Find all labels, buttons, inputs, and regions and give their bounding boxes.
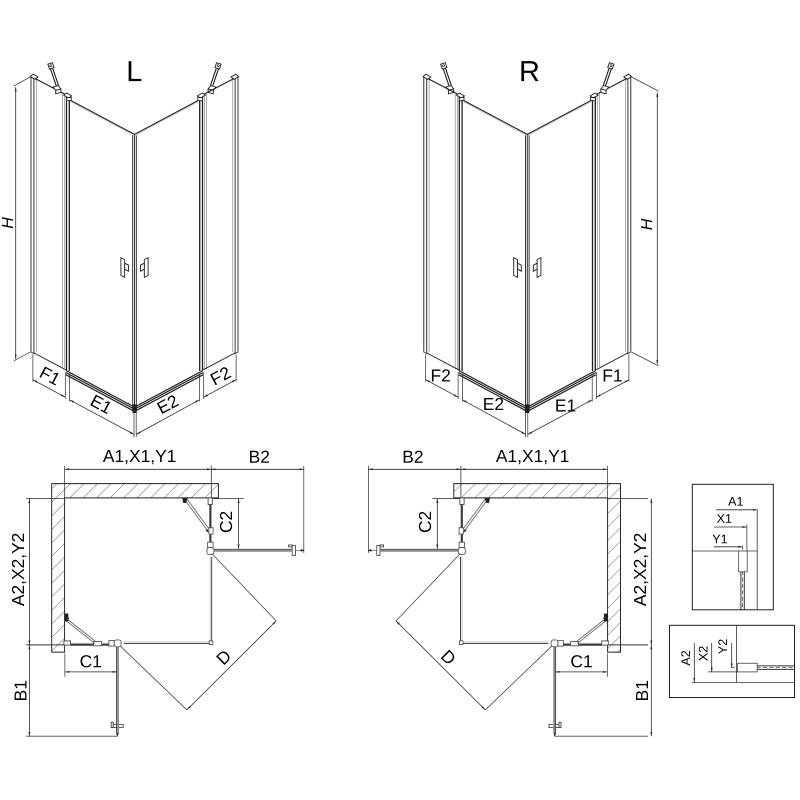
svg-text:F2: F2: [430, 366, 450, 386]
svg-text:H: H: [639, 218, 656, 230]
svg-text:H: H: [0, 217, 17, 229]
svg-text:B1: B1: [10, 680, 30, 701]
svg-text:C2: C2: [415, 511, 435, 533]
svg-text:E2: E2: [483, 394, 504, 414]
svg-text:A1,X1,Y1: A1,X1,Y1: [496, 446, 569, 466]
svg-text:Y1: Y1: [712, 532, 727, 546]
svg-text:X2: X2: [697, 646, 711, 661]
svg-text:X1: X1: [717, 512, 732, 526]
svg-text:A2,X2,Y2: A2,X2,Y2: [630, 533, 650, 606]
svg-text:B2: B2: [402, 447, 423, 467]
svg-text:L: L: [126, 56, 142, 88]
svg-text:C1: C1: [80, 651, 102, 671]
svg-text:A1: A1: [728, 495, 743, 509]
svg-text:E1: E1: [555, 395, 576, 415]
svg-text:C1: C1: [570, 651, 592, 671]
svg-text:Y2: Y2: [716, 639, 730, 654]
svg-text:A2: A2: [679, 650, 693, 665]
svg-text:F1: F1: [602, 366, 622, 386]
svg-text:A1,X1,Y1: A1,X1,Y1: [103, 446, 176, 466]
svg-text:A2,X2,Y2: A2,X2,Y2: [8, 533, 28, 606]
svg-text:B1: B1: [632, 680, 652, 701]
svg-text:C2: C2: [216, 511, 236, 533]
svg-text:B2: B2: [249, 447, 270, 467]
svg-text:R: R: [519, 56, 540, 88]
